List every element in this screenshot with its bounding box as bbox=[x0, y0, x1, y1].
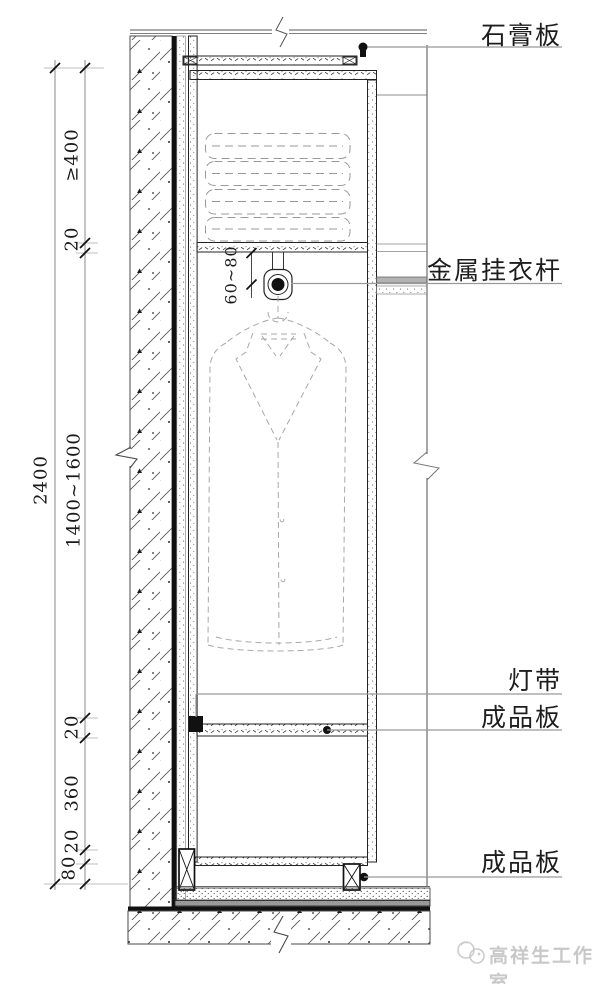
gypsum-board-assembly bbox=[183, 44, 427, 95]
label-light-strip: 灯带 bbox=[508, 661, 562, 697]
light-strip-fixture bbox=[189, 716, 203, 732]
support-block-left bbox=[179, 849, 195, 890]
dim-plinth-80: 80 bbox=[59, 856, 80, 881]
coat-outline bbox=[208, 296, 346, 651]
leader-lines bbox=[196, 47, 562, 877]
clothes-rod bbox=[264, 252, 292, 300]
rod-offset-dimension-line bbox=[247, 248, 257, 298]
ceiling-break-symbol bbox=[272, 17, 289, 47]
wall-break-symbol bbox=[116, 447, 137, 468]
right-boundary-line bbox=[414, 45, 439, 886]
bottom-board bbox=[179, 849, 368, 890]
studio-logo-icon bbox=[458, 942, 484, 963]
wall-section bbox=[116, 36, 185, 907]
dim-total-height: 2400 bbox=[31, 455, 52, 505]
blanket-stack bbox=[206, 134, 351, 242]
studio-watermark: 高祥生工作室 bbox=[489, 941, 601, 984]
leader-dot-gypsum bbox=[359, 43, 368, 52]
dim-lower-space: 360 bbox=[62, 774, 83, 811]
ground-hatch bbox=[128, 911, 430, 953]
closet-front-panel bbox=[368, 80, 377, 862]
dim-min-top-space: ≥400 bbox=[62, 128, 83, 181]
section-drawing-canvas: 2400 ≥400 20 1400~1600 20 360 20 80 60~8… bbox=[0, 0, 601, 984]
light-strip-shelf bbox=[189, 716, 368, 736]
rod-backing-strip bbox=[377, 277, 428, 294]
dimension-lines bbox=[44, 60, 128, 890]
dim-panel-20-top: 20 bbox=[62, 227, 83, 252]
label-gypsum-board: 石膏板 bbox=[481, 16, 562, 52]
closet-back-panel bbox=[189, 36, 198, 862]
dim-panel-20-mid: 20 bbox=[62, 715, 83, 740]
wardrobe-section-linework bbox=[0, 0, 601, 984]
blocking-right bbox=[343, 57, 356, 64]
dim-hanging-zone: 1400~1600 bbox=[64, 432, 85, 548]
label-finished-panel-base: 成品板 bbox=[481, 843, 562, 879]
dim-rod-drop: 60~80 bbox=[222, 245, 241, 304]
dim-panel-20-base: 20 bbox=[62, 829, 83, 854]
label-metal-hanging-rod: 金属挂衣杆 bbox=[427, 251, 562, 287]
label-finished-panel: 成品板 bbox=[481, 698, 562, 734]
extension-lines bbox=[44, 68, 128, 884]
